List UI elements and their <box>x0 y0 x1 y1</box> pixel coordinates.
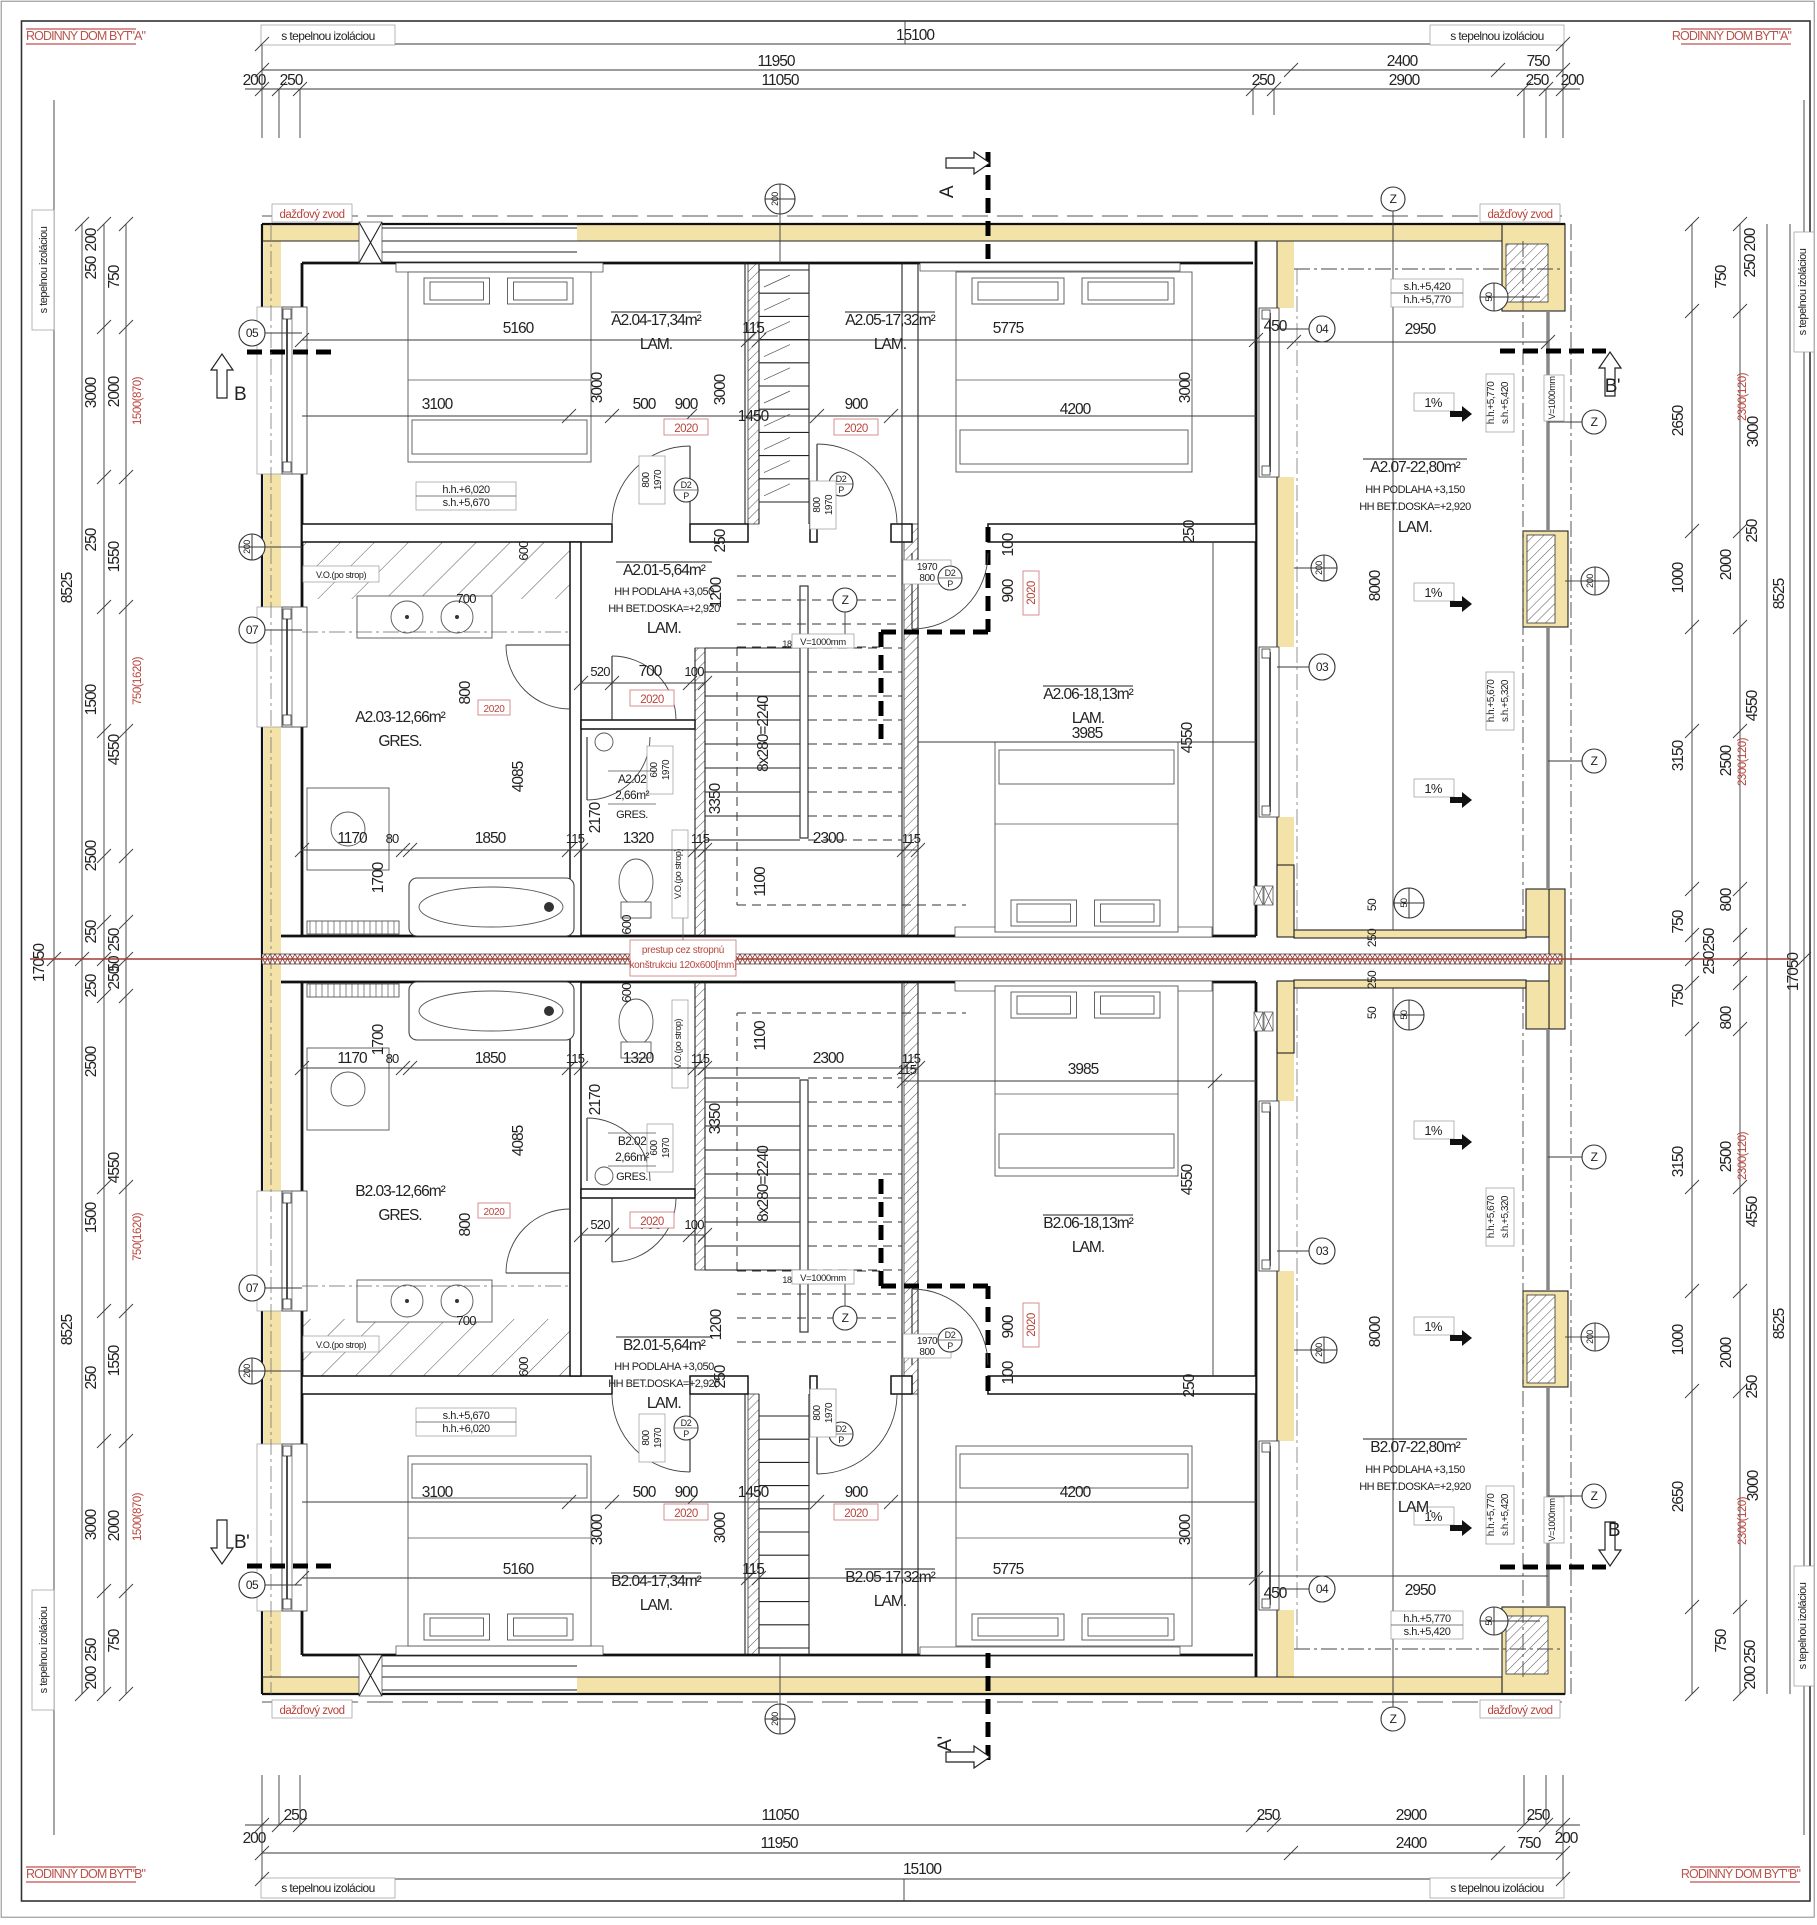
svg-text:250: 250 <box>1526 72 1550 89</box>
svg-text:s tepelnou izoláciou: s tepelnou izoláciou <box>1450 29 1543 43</box>
svg-text:4085: 4085 <box>510 761 527 792</box>
svg-text:RODINNÝ DOM BYT"A": RODINNÝ DOM BYT"A" <box>1672 28 1792 43</box>
svg-text:h.h.+5,770: h.h.+5,770 <box>1403 294 1451 306</box>
svg-text:250: 250 <box>712 528 729 552</box>
svg-text:800: 800 <box>919 573 935 584</box>
svg-text:18: 18 <box>782 639 792 649</box>
svg-text:3000: 3000 <box>1177 371 1194 403</box>
svg-text:1700: 1700 <box>370 861 387 893</box>
svg-text:1170: 1170 <box>337 1050 368 1067</box>
svg-text:2500: 2500 <box>1718 744 1735 776</box>
svg-text:V.O.(po strop): V.O.(po strop) <box>673 1019 683 1069</box>
svg-text:h.h.+5,670: h.h.+5,670 <box>1486 1195 1497 1238</box>
svg-text:5160: 5160 <box>503 320 535 337</box>
svg-text:4550: 4550 <box>1744 1195 1761 1227</box>
svg-text:115: 115 <box>566 1051 585 1066</box>
svg-text:800: 800 <box>1718 1005 1735 1029</box>
svg-text:800: 800 <box>919 1347 935 1358</box>
svg-text:250: 250 <box>1527 1807 1551 1824</box>
svg-text:250: 250 <box>280 72 304 89</box>
svg-text:250: 250 <box>83 1365 100 1389</box>
svg-text:D2: D2 <box>836 474 847 484</box>
svg-text:1000: 1000 <box>1670 561 1687 593</box>
svg-text:200: 200 <box>1585 1330 1595 1344</box>
svg-text:2300(120): 2300(120) <box>1737 737 1749 786</box>
svg-text:A2.02: A2.02 <box>618 772 647 786</box>
svg-text:450: 450 <box>1264 318 1288 335</box>
svg-text:s tepelnou izoláciou: s tepelnou izoláciou <box>281 29 374 43</box>
svg-text:4200: 4200 <box>1060 401 1092 418</box>
svg-text:3000: 3000 <box>83 376 100 408</box>
svg-text:11050: 11050 <box>762 1807 800 1824</box>
svg-text:GRES.: GRES. <box>616 1171 648 1183</box>
svg-text:P: P <box>947 1341 953 1351</box>
svg-text:1970: 1970 <box>824 494 835 515</box>
svg-text:V=1000mm: V=1000mm <box>800 1273 846 1284</box>
svg-text:4085: 4085 <box>510 1125 527 1156</box>
svg-text:1970: 1970 <box>661 1137 672 1158</box>
svg-text:s.h.+5,420: s.h.+5,420 <box>1404 1626 1451 1638</box>
svg-text:1500: 1500 <box>83 683 100 715</box>
svg-text:600: 600 <box>516 1357 531 1377</box>
svg-text:80: 80 <box>386 1051 399 1066</box>
svg-text:2300(120): 2300(120) <box>1737 372 1749 421</box>
svg-text:2000: 2000 <box>106 375 123 407</box>
svg-text:1500: 1500 <box>83 1201 100 1233</box>
svg-text:HH BET.DOSKA=+2,920: HH BET.DOSKA=+2,920 <box>1359 501 1471 513</box>
svg-text:GRES.: GRES. <box>378 1207 421 1224</box>
svg-text:800: 800 <box>812 496 823 512</box>
svg-text:B: B <box>234 384 246 405</box>
svg-text:3000: 3000 <box>712 1511 729 1543</box>
svg-text:B2.03-12,66m²: B2.03-12,66m² <box>355 1183 445 1200</box>
svg-text:HH PODLAHA +3,150: HH PODLAHA +3,150 <box>1365 484 1465 496</box>
svg-text:750(1620): 750(1620) <box>132 1212 144 1261</box>
svg-text:2300(120): 2300(120) <box>1737 1496 1749 1545</box>
svg-text:115: 115 <box>898 1062 917 1077</box>
svg-text:1%: 1% <box>1424 585 1442 600</box>
svg-text:P: P <box>683 491 689 501</box>
svg-text:3100: 3100 <box>422 396 454 413</box>
svg-text:115: 115 <box>691 1051 710 1066</box>
svg-text:A': A' <box>935 1736 956 1751</box>
svg-text:2950: 2950 <box>1405 1582 1437 1599</box>
svg-text:750: 750 <box>1518 1835 1542 1852</box>
svg-text:Z: Z <box>1390 192 1397 206</box>
svg-text:Z: Z <box>1591 754 1598 768</box>
svg-text:D2: D2 <box>681 1418 692 1428</box>
svg-text:50: 50 <box>1365 898 1379 911</box>
svg-text:dažďový zvod: dažďový zvod <box>1488 209 1553 221</box>
svg-text:LAM.: LAM. <box>647 620 681 637</box>
svg-text:B: B <box>1608 1520 1620 1541</box>
svg-text:200: 200 <box>1742 227 1759 251</box>
svg-text:200: 200 <box>770 1712 780 1726</box>
svg-text:1450: 1450 <box>738 1484 770 1501</box>
svg-text:V=1000mm: V=1000mm <box>1547 1498 1557 1541</box>
svg-text:HH BET.DOSKA=+2,920: HH BET.DOSKA=+2,920 <box>608 603 720 615</box>
svg-text:2020: 2020 <box>640 694 664 706</box>
svg-text:P: P <box>838 1435 844 1445</box>
svg-text:3000: 3000 <box>83 1508 100 1540</box>
svg-text:1100: 1100 <box>752 1020 769 1051</box>
svg-text:2,66m²: 2,66m² <box>615 788 649 802</box>
svg-text:1%: 1% <box>1424 781 1442 796</box>
svg-text:200: 200 <box>83 1665 100 1689</box>
svg-text:250: 250 <box>1701 950 1718 974</box>
svg-text:600: 600 <box>649 1139 660 1155</box>
svg-text:900: 900 <box>675 396 699 413</box>
svg-text:2500: 2500 <box>1718 1140 1735 1172</box>
svg-text:HH PODLAHA +3,050: HH PODLAHA +3,050 <box>614 586 714 598</box>
svg-text:2020: 2020 <box>1026 1313 1038 1337</box>
svg-text:GRES.: GRES. <box>616 809 648 821</box>
svg-text:600: 600 <box>619 983 634 1003</box>
svg-text:h.h.+5,770: h.h.+5,770 <box>1486 1493 1497 1536</box>
svg-text:Z: Z <box>1591 1150 1598 1164</box>
svg-text:1550: 1550 <box>106 540 123 572</box>
svg-text:8525: 8525 <box>1771 578 1788 609</box>
svg-text:900: 900 <box>845 1484 869 1501</box>
svg-text:3350: 3350 <box>707 782 724 814</box>
svg-text:200: 200 <box>1555 1830 1579 1847</box>
svg-text:2000: 2000 <box>1718 1336 1735 1368</box>
svg-text:3150: 3150 <box>1670 739 1687 771</box>
svg-text:s tepelnou izoláciou: s tepelnou izoláciou <box>38 226 50 313</box>
svg-text:1100: 1100 <box>752 866 769 897</box>
svg-text:750(1620): 750(1620) <box>132 656 144 705</box>
svg-text:3000: 3000 <box>589 1513 606 1545</box>
svg-text:3150: 3150 <box>1670 1145 1687 1177</box>
svg-text:1700: 1700 <box>370 1023 387 1055</box>
svg-text:HH BET.DOSKA=+2,920: HH BET.DOSKA=+2,920 <box>1359 1481 1471 1493</box>
svg-text:500: 500 <box>633 396 657 413</box>
svg-text:2500: 2500 <box>83 839 100 871</box>
svg-text:250: 250 <box>1744 1374 1761 1398</box>
svg-text:250: 250 <box>1742 1639 1759 1663</box>
svg-text:1550: 1550 <box>106 1344 123 1376</box>
svg-text:250: 250 <box>284 1807 308 1824</box>
svg-text:2,66m²: 2,66m² <box>615 1150 649 1164</box>
svg-text:dažďový zvod: dažďový zvod <box>1488 1705 1553 1717</box>
svg-text:15100: 15100 <box>903 1861 942 1878</box>
svg-text:P: P <box>683 1429 689 1439</box>
svg-text:800: 800 <box>641 471 652 487</box>
svg-text:03: 03 <box>1316 660 1329 674</box>
svg-text:200: 200 <box>1561 72 1585 89</box>
svg-text:2170: 2170 <box>587 1083 604 1115</box>
svg-text:LAM.: LAM. <box>1398 1499 1432 1516</box>
svg-text:1320: 1320 <box>623 1050 655 1067</box>
svg-text:Z: Z <box>1390 1712 1397 1726</box>
svg-text:RODINNÝ DOM BYT"B": RODINNÝ DOM BYT"B" <box>1681 1866 1801 1881</box>
svg-text:115: 115 <box>566 831 585 846</box>
svg-text:5775: 5775 <box>993 320 1024 337</box>
svg-text:520: 520 <box>590 1217 610 1232</box>
svg-text:05: 05 <box>246 326 259 340</box>
svg-text:520: 520 <box>590 664 610 679</box>
svg-text:P: P <box>947 579 953 589</box>
svg-text:18: 18 <box>782 1275 792 1285</box>
svg-text:750: 750 <box>1670 983 1687 1007</box>
svg-text:3100: 3100 <box>422 1484 454 1501</box>
svg-text:250: 250 <box>1181 1373 1198 1397</box>
svg-text:A2.04-17,34m²: A2.04-17,34m² <box>611 312 701 329</box>
svg-text:04: 04 <box>1316 1582 1329 1596</box>
svg-text:3000: 3000 <box>1745 1469 1762 1501</box>
svg-text:50: 50 <box>1484 292 1494 302</box>
svg-text:1450: 1450 <box>738 408 770 425</box>
svg-text:200: 200 <box>770 192 780 206</box>
svg-text:2000: 2000 <box>106 1509 123 1541</box>
svg-text:RODINNÝ DOM BYT"B": RODINNÝ DOM BYT"B" <box>26 1866 146 1881</box>
svg-text:800: 800 <box>641 1429 652 1445</box>
svg-text:P: P <box>838 485 844 495</box>
svg-text:05: 05 <box>246 1578 259 1592</box>
svg-text:s.h.+5,670: s.h.+5,670 <box>443 497 490 509</box>
svg-text:3000: 3000 <box>712 373 729 405</box>
svg-text:h.h.+5,670: h.h.+5,670 <box>1486 679 1497 722</box>
svg-text:250: 250 <box>83 255 100 279</box>
svg-text:A2.03-12,66m²: A2.03-12,66m² <box>355 709 445 726</box>
svg-text:h.h.+5,770: h.h.+5,770 <box>1486 381 1497 424</box>
svg-text:600: 600 <box>516 541 531 561</box>
svg-text:s tepelnou izoláciou: s tepelnou izoláciou <box>38 1606 50 1693</box>
svg-text:B2.06-18,13m²: B2.06-18,13m² <box>1043 1215 1133 1232</box>
svg-text:B': B' <box>234 1532 249 1553</box>
svg-text:4550: 4550 <box>1744 689 1761 721</box>
svg-text:1%: 1% <box>1424 1319 1442 1334</box>
svg-text:4550: 4550 <box>1179 721 1196 753</box>
svg-text:800: 800 <box>457 680 474 704</box>
svg-text:LAM.: LAM. <box>640 336 672 353</box>
svg-text:250: 250 <box>1744 518 1761 542</box>
svg-text:Z: Z <box>1591 1489 1598 1503</box>
svg-text:konštrukciu 120x600[mm]: konštrukciu 120x600[mm] <box>629 960 737 971</box>
svg-text:15100: 15100 <box>896 27 935 44</box>
svg-text:LAM.: LAM. <box>874 1593 906 1610</box>
svg-text:250: 250 <box>1365 928 1379 947</box>
svg-text:V=1000mm: V=1000mm <box>1547 376 1557 419</box>
svg-text:D2: D2 <box>945 568 956 578</box>
svg-text:2650: 2650 <box>1670 404 1687 436</box>
svg-text:s.h.+5,320: s.h.+5,320 <box>1500 1195 1511 1238</box>
svg-text:s.h.+5,420: s.h.+5,420 <box>1500 381 1511 424</box>
svg-text:2020: 2020 <box>674 423 698 435</box>
svg-text:V.O.(po strop): V.O.(po strop) <box>673 849 683 899</box>
svg-text:2300(120): 2300(120) <box>1737 1131 1749 1180</box>
svg-text:2020: 2020 <box>483 704 505 715</box>
svg-text:750: 750 <box>1670 909 1687 933</box>
svg-text:50: 50 <box>1399 1010 1409 1020</box>
svg-text:250: 250 <box>106 927 123 951</box>
svg-text:B2.04-17,34m²: B2.04-17,34m² <box>611 1573 701 1590</box>
svg-text:3000: 3000 <box>1177 1513 1194 1545</box>
svg-text:B2.02: B2.02 <box>618 1134 647 1148</box>
svg-text:50: 50 <box>1399 898 1409 908</box>
svg-text:LAM.: LAM. <box>647 1395 681 1412</box>
svg-text:A: A <box>937 185 958 198</box>
svg-text:750: 750 <box>1527 53 1551 70</box>
svg-text:LAM.: LAM. <box>1398 519 1432 536</box>
svg-text:s tepelnou izoláciou: s tepelnou izoláciou <box>1450 1881 1543 1895</box>
svg-text:250: 250 <box>1701 927 1718 951</box>
svg-text:s.h.+5,320: s.h.+5,320 <box>1500 679 1511 722</box>
svg-text:2300: 2300 <box>813 830 845 847</box>
svg-text:1170: 1170 <box>337 830 368 847</box>
svg-text:2900: 2900 <box>1389 72 1421 89</box>
svg-text:s tepelnou izoláciou: s tepelnou izoláciou <box>281 1881 374 1895</box>
svg-text:RODINNÝ DOM BYT"A": RODINNÝ DOM BYT"A" <box>26 28 146 43</box>
svg-text:1320: 1320 <box>623 830 655 847</box>
svg-text:3350: 3350 <box>707 1102 724 1134</box>
svg-text:100: 100 <box>1000 532 1017 556</box>
svg-text:8x280=2240: 8x280=2240 <box>755 1145 772 1222</box>
svg-text:HH BET.DOSKA=+2,920: HH BET.DOSKA=+2,920 <box>608 1378 720 1390</box>
svg-text:Z: Z <box>842 1311 849 1325</box>
svg-text:750: 750 <box>106 264 123 288</box>
svg-text:V.O.(po strop): V.O.(po strop) <box>316 1340 366 1350</box>
svg-text:900: 900 <box>675 1484 699 1501</box>
svg-text:3985: 3985 <box>1072 725 1103 742</box>
svg-text:600: 600 <box>619 915 634 935</box>
svg-text:LAM.: LAM. <box>1072 710 1104 727</box>
svg-text:s.h.+5,420: s.h.+5,420 <box>1500 1493 1511 1536</box>
svg-text:s.h.+5,420: s.h.+5,420 <box>1404 281 1451 293</box>
svg-text:04: 04 <box>1316 322 1329 336</box>
svg-text:2400: 2400 <box>1387 53 1419 70</box>
svg-text:200: 200 <box>1585 574 1595 588</box>
svg-text:2020: 2020 <box>844 423 868 435</box>
svg-text:5775: 5775 <box>993 1561 1024 1578</box>
svg-text:D2: D2 <box>836 1424 847 1434</box>
svg-text:3985: 3985 <box>1068 1061 1099 1078</box>
svg-text:1850: 1850 <box>475 1050 507 1067</box>
svg-text:1970: 1970 <box>653 1427 664 1448</box>
svg-text:03: 03 <box>1316 1244 1329 1258</box>
svg-text:2950: 2950 <box>1405 321 1437 338</box>
svg-text:1%: 1% <box>1424 1123 1442 1138</box>
svg-text:250: 250 <box>106 965 123 989</box>
svg-text:prestup cez stropnú: prestup cez stropnú <box>642 945 724 956</box>
svg-text:1970: 1970 <box>653 469 664 490</box>
svg-text:115: 115 <box>902 831 921 846</box>
svg-text:800: 800 <box>812 1404 823 1420</box>
svg-text:A2.01-5,64m²: A2.01-5,64m² <box>623 562 706 579</box>
svg-text:GRES.: GRES. <box>378 733 421 750</box>
svg-text:Z: Z <box>1591 415 1598 429</box>
svg-text:D2: D2 <box>945 1330 956 1340</box>
svg-text:250: 250 <box>83 527 100 551</box>
svg-text:2000: 2000 <box>1718 548 1735 580</box>
svg-text:D2: D2 <box>681 480 692 490</box>
svg-text:80: 80 <box>386 831 399 846</box>
svg-text:1500(870): 1500(870) <box>132 376 144 425</box>
svg-text:100: 100 <box>1000 1360 1017 1384</box>
svg-text:B2.01-5,64m²: B2.01-5,64m² <box>623 1337 706 1354</box>
svg-text:2020: 2020 <box>483 1207 505 1218</box>
svg-text:dažďový zvod: dažďový zvod <box>280 1705 345 1717</box>
svg-text:s tepelnou izoláciou: s tepelnou izoláciou <box>1797 1582 1809 1669</box>
svg-text:200: 200 <box>242 540 252 554</box>
svg-text:750: 750 <box>106 1628 123 1652</box>
svg-text:h.h.+6,020: h.h.+6,020 <box>442 484 490 496</box>
svg-text:A2.07-22,80m²: A2.07-22,80m² <box>1370 459 1460 476</box>
svg-text:100: 100 <box>684 664 704 679</box>
svg-text:1200: 1200 <box>708 1308 725 1340</box>
svg-text:115: 115 <box>742 320 764 337</box>
svg-text:8000: 8000 <box>1367 569 1384 601</box>
svg-text:2900: 2900 <box>1396 1807 1428 1824</box>
svg-text:A2.05-17,32m²: A2.05-17,32m² <box>845 312 935 329</box>
svg-text:17050: 17050 <box>1785 952 1802 991</box>
svg-text:200: 200 <box>243 1830 267 1847</box>
svg-text:V.O.(po strop): V.O.(po strop) <box>316 570 366 580</box>
svg-text:900: 900 <box>1000 578 1017 602</box>
svg-text:2400: 2400 <box>1396 1835 1428 1852</box>
svg-text:1000: 1000 <box>1670 1323 1687 1355</box>
svg-text:250: 250 <box>1257 1807 1281 1824</box>
svg-text:1500(870): 1500(870) <box>132 1492 144 1541</box>
svg-text:900: 900 <box>845 396 869 413</box>
svg-text:HH PODLAHA +3,150: HH PODLAHA +3,150 <box>1365 1464 1465 1476</box>
svg-text:250: 250 <box>1181 519 1198 543</box>
svg-text:500: 500 <box>633 1484 657 1501</box>
svg-text:250: 250 <box>1252 72 1276 89</box>
svg-text:200: 200 <box>1314 561 1324 575</box>
svg-text:450: 450 <box>1264 1585 1288 1602</box>
svg-text:2020: 2020 <box>1026 581 1038 605</box>
svg-text:600: 600 <box>649 761 660 777</box>
svg-text:800: 800 <box>457 1212 474 1236</box>
svg-text:1970: 1970 <box>917 562 938 573</box>
svg-text:250: 250 <box>83 1637 100 1661</box>
svg-text:h.h.+5,770: h.h.+5,770 <box>1403 1613 1451 1625</box>
svg-text:LAM.: LAM. <box>874 336 906 353</box>
svg-text:11950: 11950 <box>761 1835 799 1852</box>
svg-text:250: 250 <box>1365 970 1379 989</box>
svg-text:700: 700 <box>456 1313 476 1328</box>
svg-text:2020: 2020 <box>844 1508 868 1520</box>
svg-text:2020: 2020 <box>640 1216 664 1228</box>
svg-text:8525: 8525 <box>59 572 76 603</box>
svg-text:11950: 11950 <box>758 53 796 70</box>
svg-text:V=1000mm: V=1000mm <box>800 637 846 648</box>
svg-text:8x280=2240: 8x280=2240 <box>755 695 772 772</box>
svg-text:750: 750 <box>1713 1628 1730 1652</box>
svg-text:B2.07-22,80m²: B2.07-22,80m² <box>1370 1439 1460 1456</box>
svg-text:4200: 4200 <box>1060 1484 1092 1501</box>
svg-text:4550: 4550 <box>106 1151 123 1183</box>
svg-text:200: 200 <box>1314 1343 1324 1357</box>
svg-text:2020: 2020 <box>674 1508 698 1520</box>
svg-text:2170: 2170 <box>587 801 604 833</box>
svg-text:200: 200 <box>242 1364 252 1378</box>
svg-text:Z: Z <box>842 593 849 607</box>
svg-text:3000: 3000 <box>589 371 606 403</box>
svg-text:100: 100 <box>684 1217 704 1232</box>
svg-text:8000: 8000 <box>1367 1315 1384 1347</box>
svg-text:4550: 4550 <box>106 733 123 765</box>
svg-text:07: 07 <box>246 623 259 637</box>
svg-text:A2.06-18,13m²: A2.06-18,13m² <box>1043 686 1133 703</box>
svg-text:1970: 1970 <box>824 1402 835 1423</box>
svg-text:s.h.+5,670: s.h.+5,670 <box>443 1410 490 1422</box>
svg-text:50: 50 <box>1365 1006 1379 1019</box>
svg-text:115: 115 <box>691 831 710 846</box>
svg-text:700: 700 <box>639 663 663 680</box>
svg-text:h.h.+6,020: h.h.+6,020 <box>442 1423 490 1435</box>
